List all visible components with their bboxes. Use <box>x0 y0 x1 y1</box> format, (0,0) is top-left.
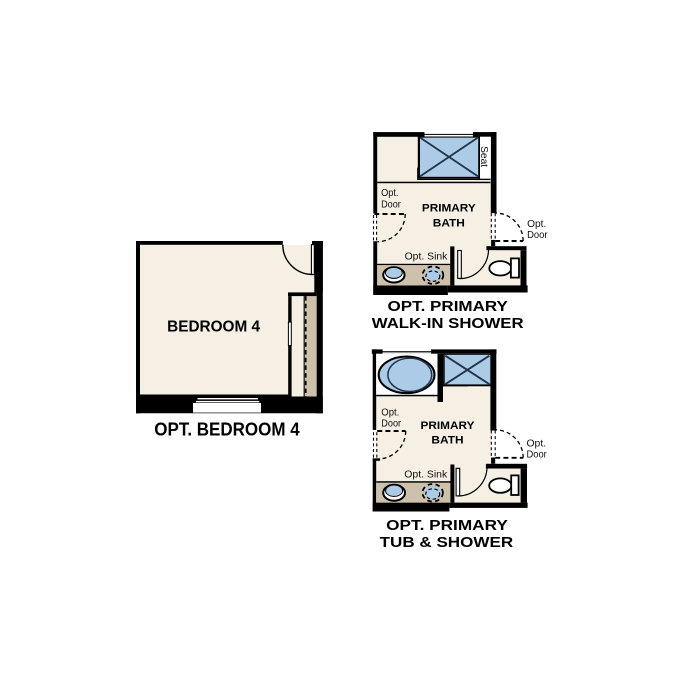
svg-text:Door: Door <box>381 199 401 210</box>
svg-text:Door: Door <box>527 449 548 460</box>
svg-text:TUB & SHOWER: TUB & SHOWER <box>380 535 514 551</box>
svg-text:Opt.: Opt. <box>381 407 399 418</box>
svg-text:OPT. PRIMARY: OPT. PRIMARY <box>386 518 508 534</box>
svg-text:Opt. Sink: Opt. Sink <box>405 252 449 263</box>
svg-text:OPT. BEDROOM 4: OPT. BEDROOM 4 <box>154 419 300 440</box>
svg-text:Opt.: Opt. <box>381 188 398 199</box>
svg-text:Opt.: Opt. <box>527 219 546 230</box>
svg-text:BEDROOM 4: BEDROOM 4 <box>167 319 260 336</box>
svg-text:OPT. PRIMARY: OPT. PRIMARY <box>388 299 509 315</box>
svg-text:Door: Door <box>381 418 401 429</box>
svg-text:Door: Door <box>527 230 548 241</box>
svg-text:WALK-IN SHOWER: WALK-IN SHOWER <box>372 316 524 332</box>
svg-text:Seat: Seat <box>478 146 489 167</box>
svg-text:Opt.: Opt. <box>527 438 547 449</box>
svg-text:BATH: BATH <box>433 217 465 229</box>
svg-text:Opt. Sink: Opt. Sink <box>404 470 448 481</box>
svg-text:PRIMARY: PRIMARY <box>421 420 475 432</box>
svg-text:PRIMARY: PRIMARY <box>422 203 476 215</box>
svg-text:BATH: BATH <box>431 435 463 447</box>
